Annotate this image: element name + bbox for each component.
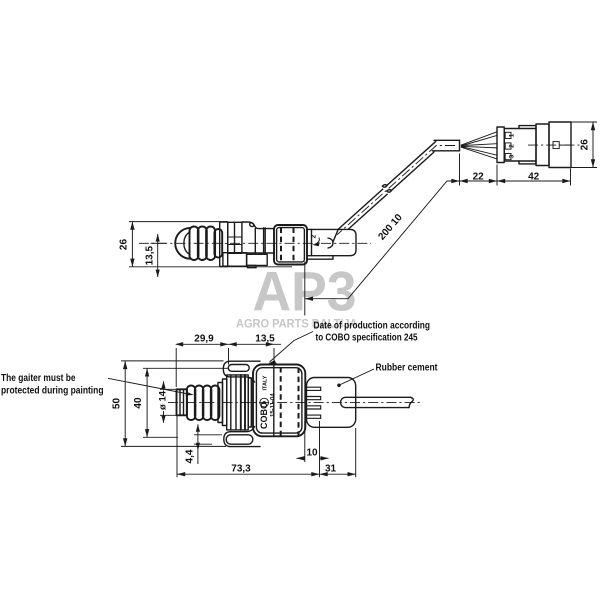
svg-text:2: 2 [311,234,318,238]
svg-text:4,4: 4,4 [184,449,195,463]
svg-text:22: 22 [473,171,485,182]
svg-text:2: 2 [509,144,516,148]
svg-text:42: 42 [528,171,540,182]
svg-text:ø 14: ø 14 [158,390,169,410]
svg-text:26: 26 [580,139,591,151]
svg-text:to COBO specification 245: to COBO specification 245 [316,333,418,344]
svg-text:3: 3 [509,154,516,158]
svg-text:73,3: 73,3 [231,464,251,475]
svg-text:50: 50 [111,398,122,410]
svg-text:13,5: 13,5 [144,246,155,266]
svg-text:15-11-04: 15-11-04 [271,393,277,417]
svg-text:protected during painting: protected during painting [1,386,104,397]
svg-text:The gaiter must be: The gaiter must be [1,373,76,384]
svg-text:29,9: 29,9 [194,334,214,345]
svg-text:40: 40 [133,397,144,409]
svg-text:31: 31 [325,464,337,475]
svg-text:13,5: 13,5 [255,334,275,345]
svg-text:Date of production according: Date of production according [314,321,431,332]
svg-text:ITALY: ITALY [263,375,269,390]
svg-text:Rubber cement: Rubber cement [376,363,439,374]
svg-text:26: 26 [119,239,130,251]
svg-text:10: 10 [306,447,318,458]
svg-text:1: 1 [509,133,516,137]
